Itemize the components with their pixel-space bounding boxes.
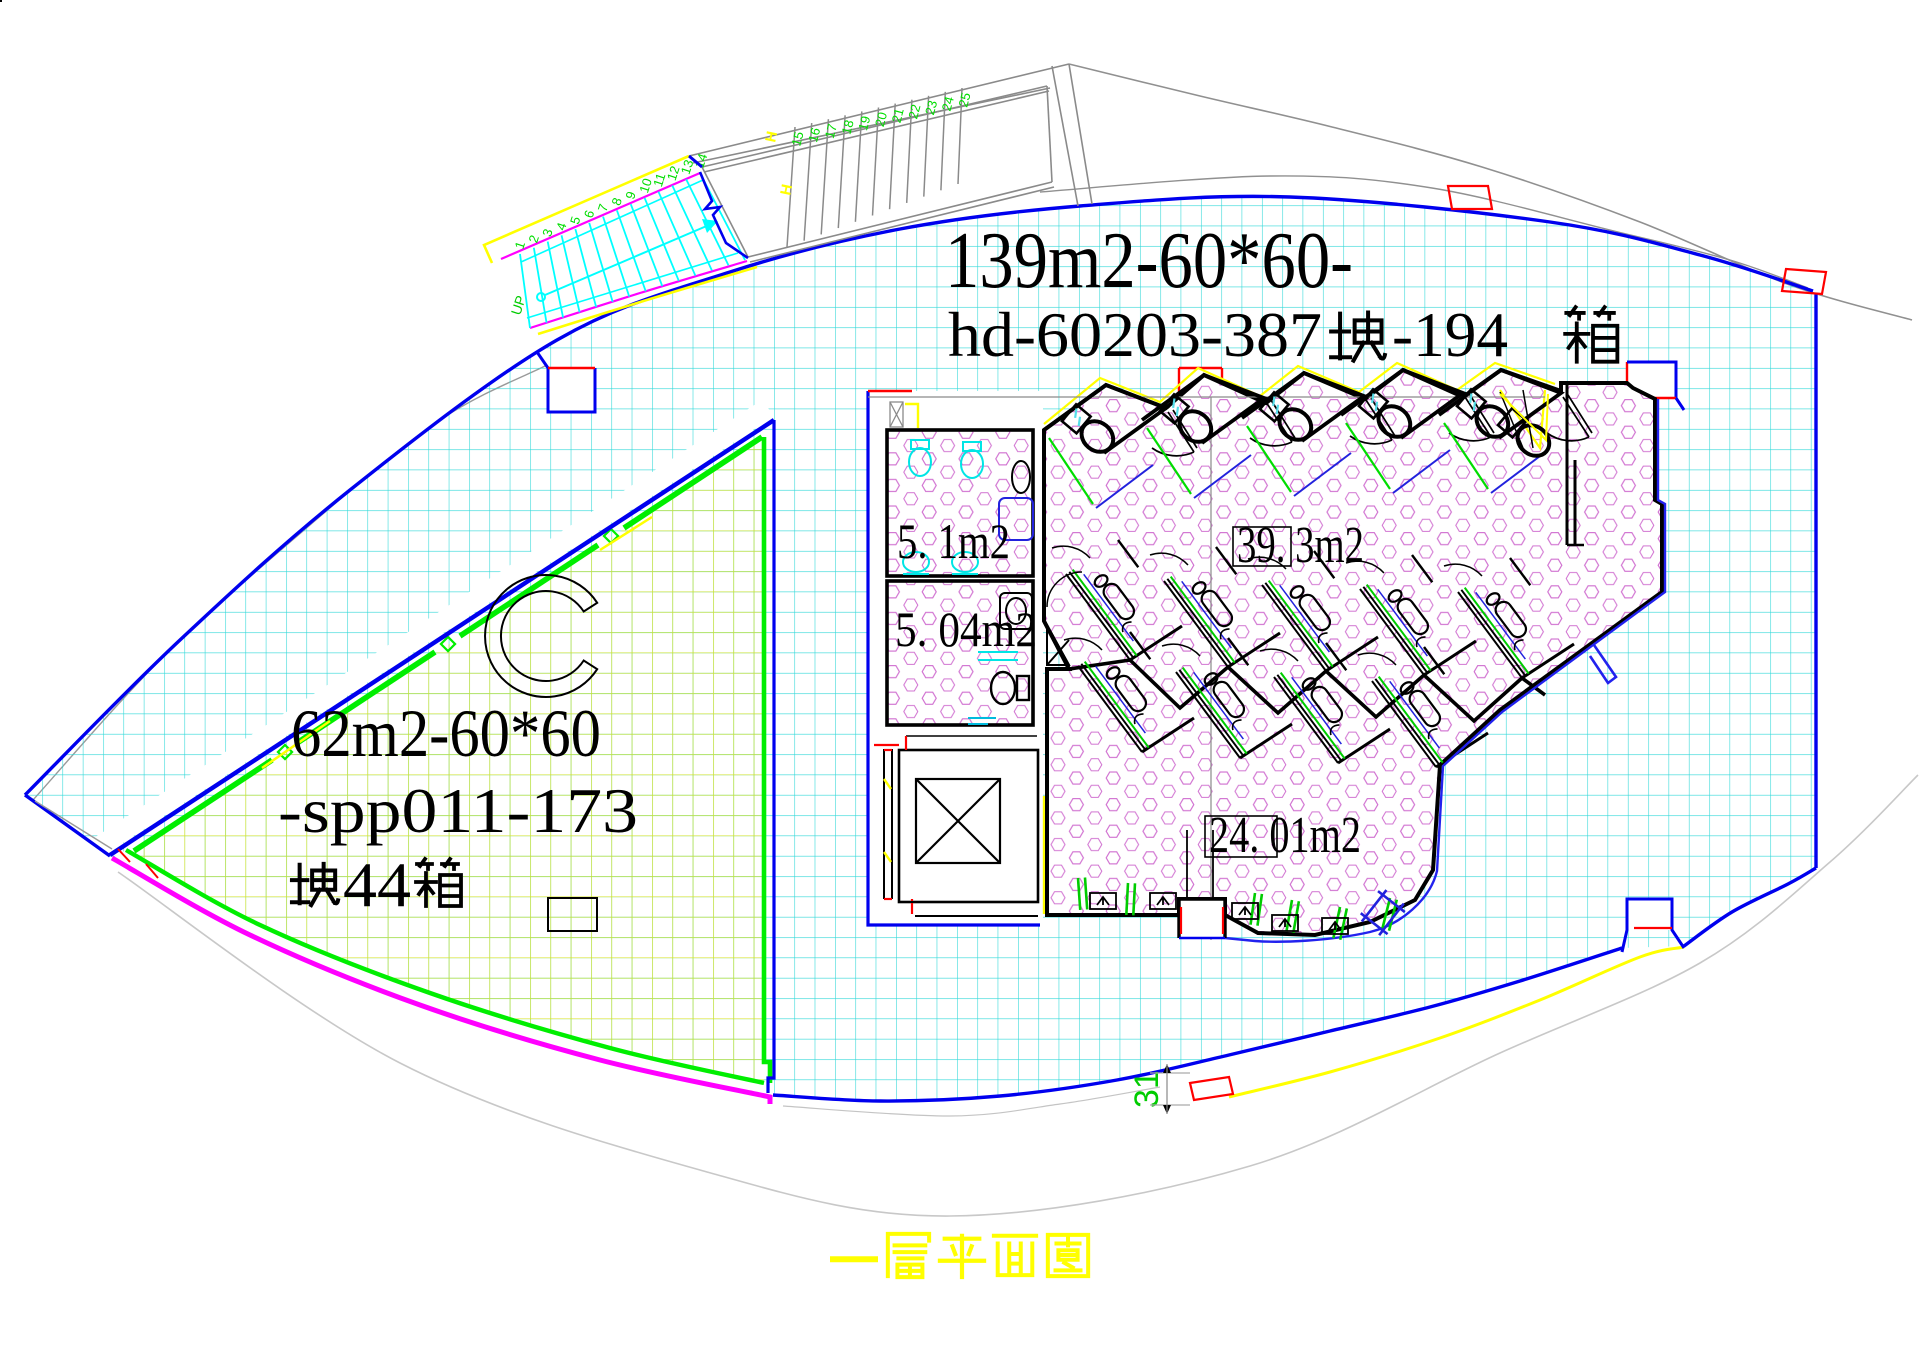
svg-text:-194: -194 (1392, 299, 1508, 370)
svg-text:5. 1m2: 5. 1m2 (897, 513, 1010, 569)
svg-text:44: 44 (343, 849, 411, 920)
svg-text:-spp011-173: -spp011-173 (278, 775, 638, 846)
svg-text:62m2-60*60: 62m2-60*60 (291, 695, 601, 771)
svg-text:139m2-60*60-: 139m2-60*60- (945, 217, 1353, 305)
svg-text:5. 04m2: 5. 04m2 (895, 601, 1037, 657)
svg-text:31: 31 (1128, 1070, 1166, 1108)
svg-text:hd-60203-387: hd-60203-387 (948, 299, 1322, 370)
